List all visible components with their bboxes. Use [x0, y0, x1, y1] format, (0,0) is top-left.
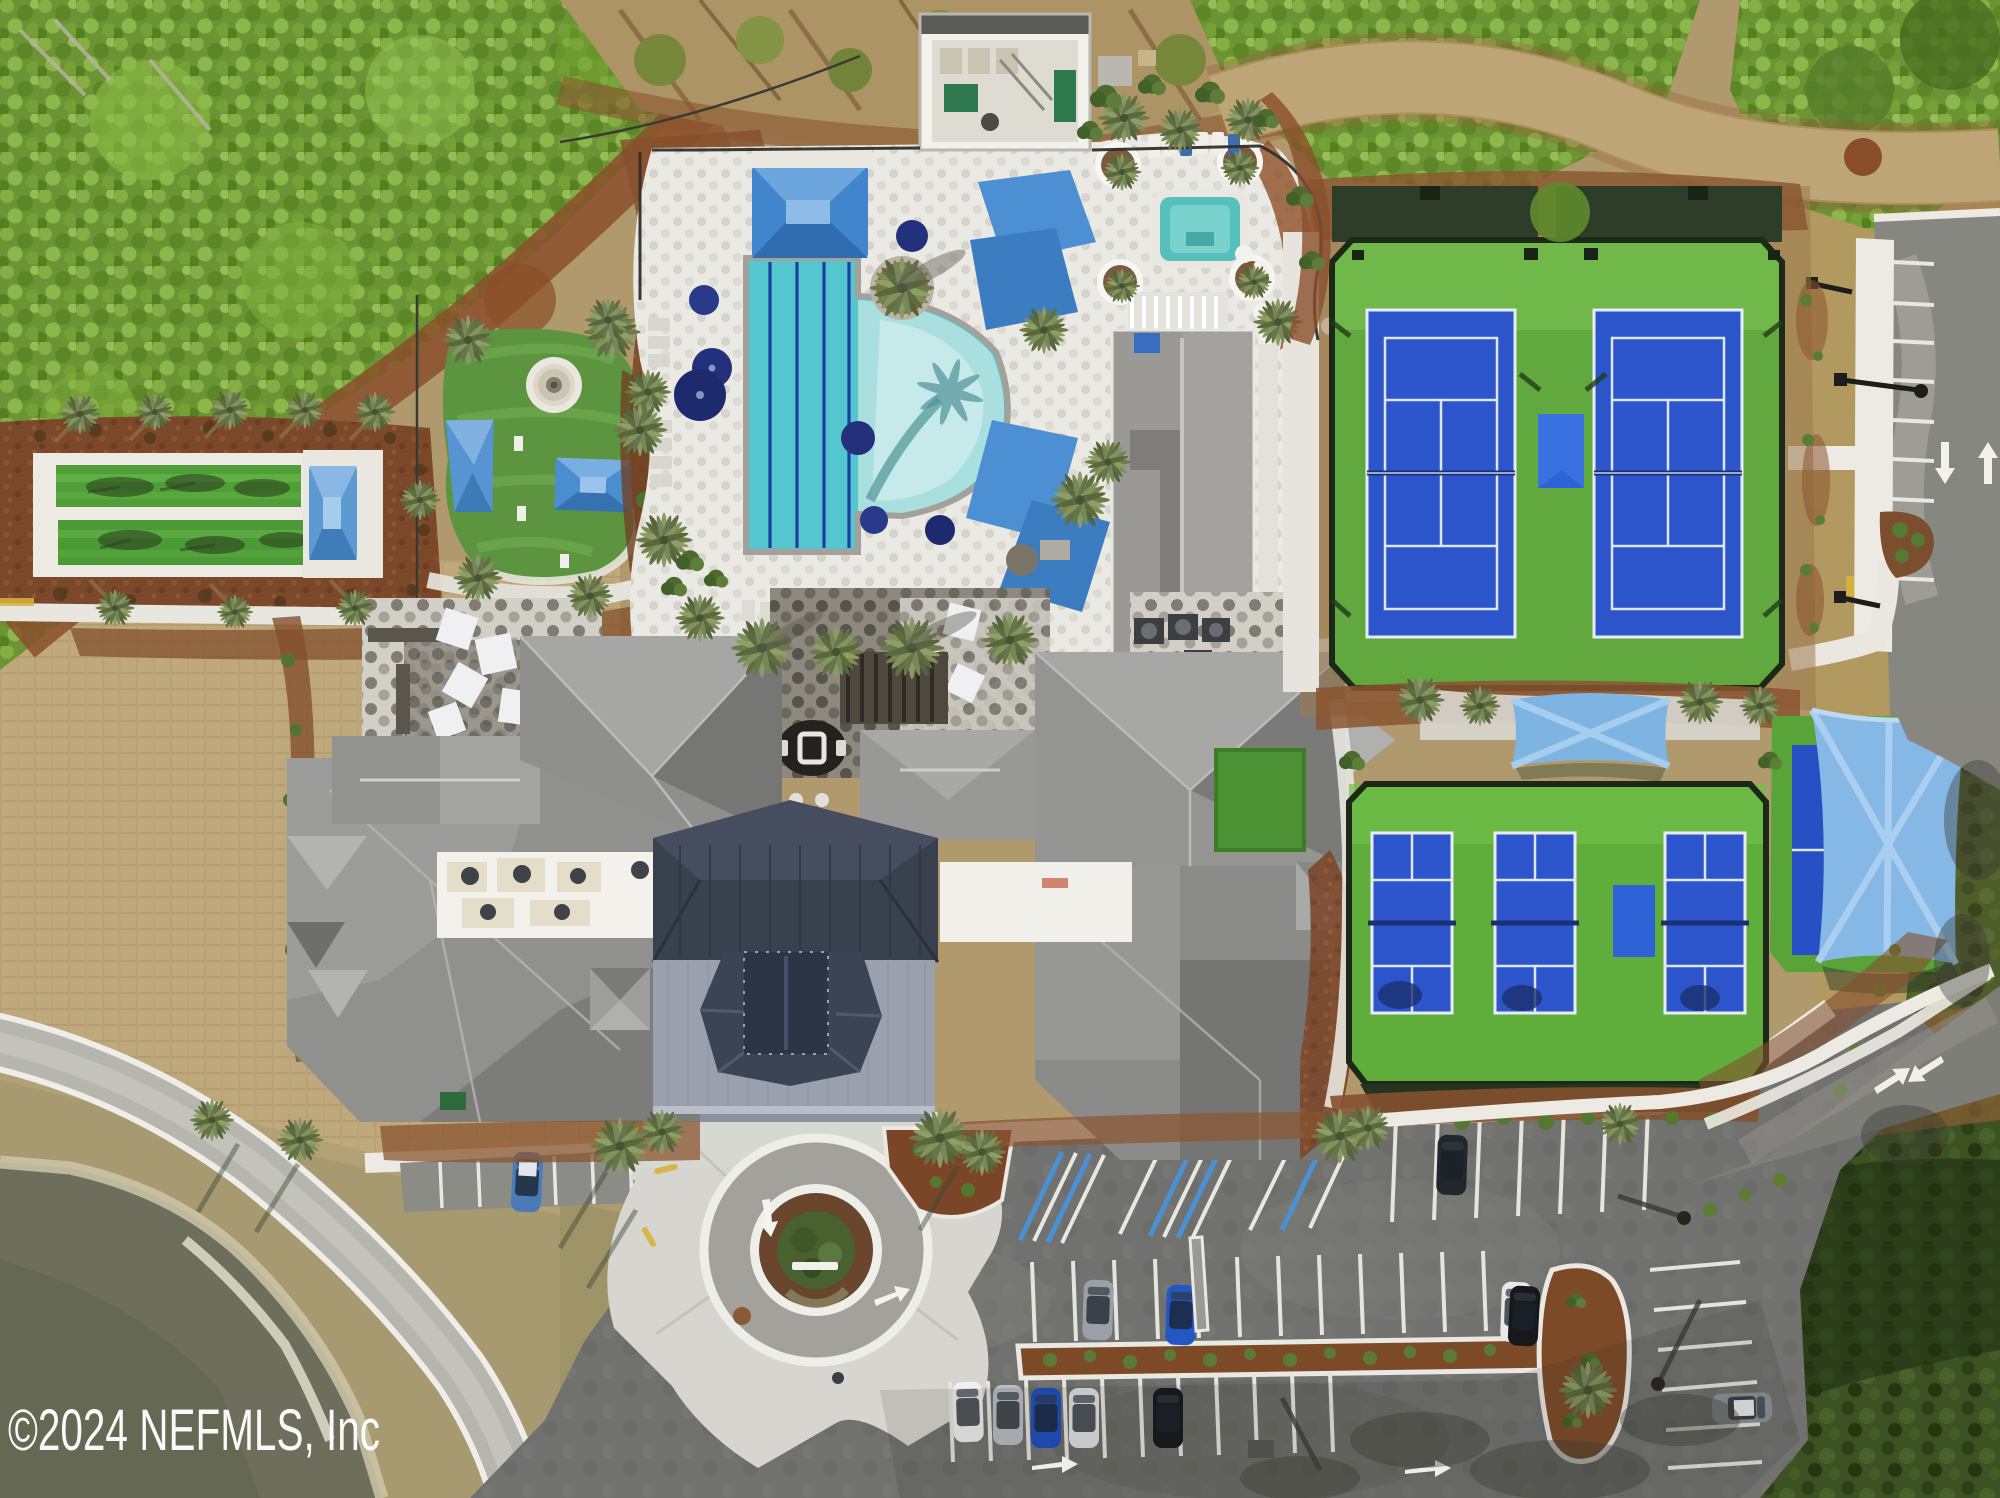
svg-text:©2024 NEFMLS, Inc: ©2024 NEFMLS, Inc	[8, 1398, 380, 1463]
